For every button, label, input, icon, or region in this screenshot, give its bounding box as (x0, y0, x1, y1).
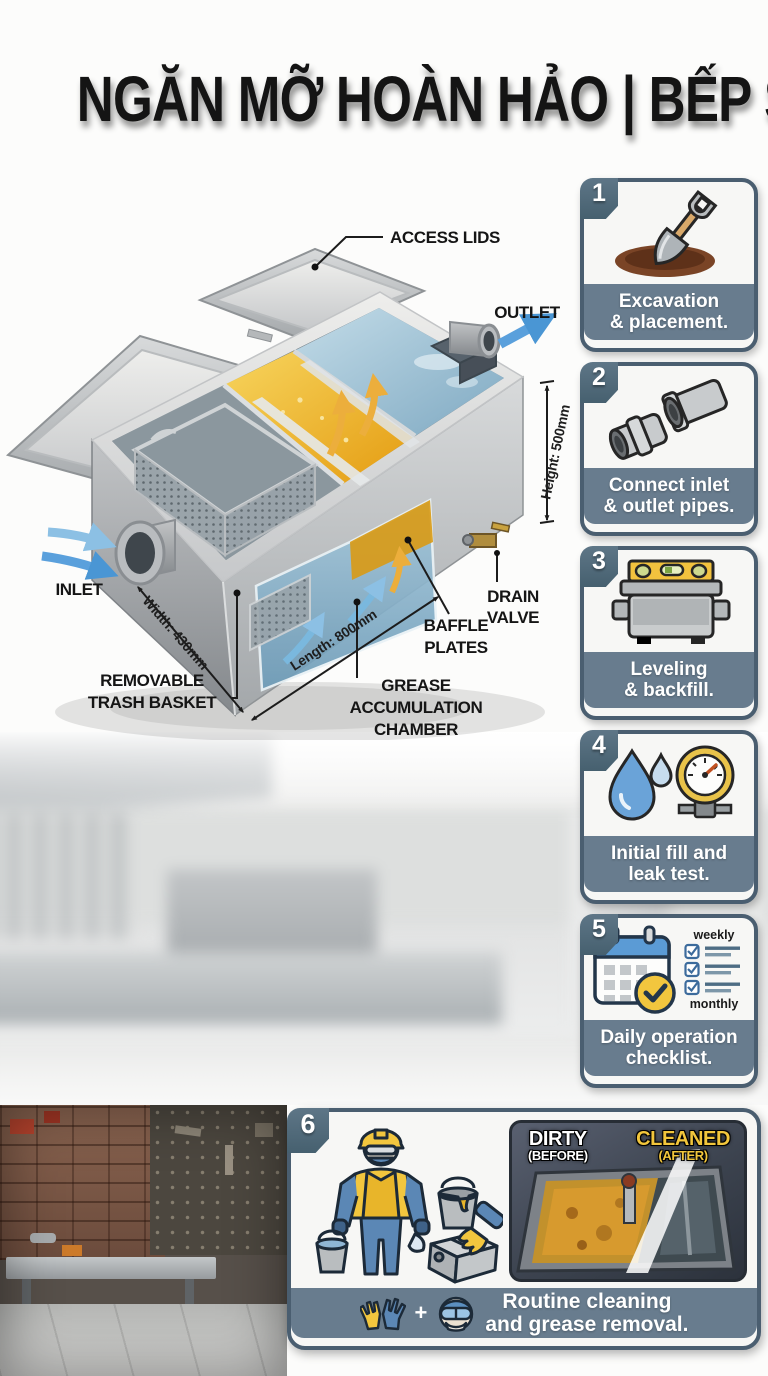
grease-trap-illustration: Height: 500mm Width: 430mm Length: 800mm… (0, 150, 580, 740)
step-card-1: 1 Excavation& placement. (580, 178, 758, 352)
step-6-caption: Routine cleaningand grease removal. (485, 1290, 688, 1336)
step-5-caption: Daily operationchecklist. (584, 1020, 754, 1076)
cleaned-after-label: CLEANED (AFTER) (636, 1129, 730, 1163)
trash-basket-label-1: REMOVABLE (100, 671, 204, 690)
page-title: NGĂN MỠ HOÀN HẢO | BẾP SẠCH NGAY (77, 62, 691, 136)
gloves-icon (360, 1293, 406, 1333)
grease-chamber-label-1: GREASE (381, 676, 450, 695)
step-1-caption: Excavation& placement. (584, 284, 754, 340)
workshop-background-photo (0, 1105, 287, 1376)
step-card-5: 5 weekly (580, 914, 758, 1088)
baffle-plates-label-2: PLATES (424, 638, 487, 657)
drain-valve-label-1: DRAIN (487, 587, 539, 606)
step-3-caption: Leveling& backfill. (584, 652, 754, 708)
grease-chamber-label-2: ACCUMULATION (350, 698, 483, 717)
access-lids-label: ACCESS LIDS (390, 228, 500, 247)
step-card-3: 3 Leveling& backfill. (580, 546, 758, 720)
trash-basket-label-2: TRASH BASKET (88, 693, 217, 712)
outlet-label: OUTLET (494, 303, 561, 322)
goggles-mask-icon (436, 1293, 476, 1333)
pipes-icon (604, 371, 734, 463)
step-card-2: 2 Connect inlet& outlet pipes. (580, 362, 758, 536)
drain-valve-label-2: VALVE (487, 608, 539, 627)
step-1-number: 1 (592, 179, 606, 208)
checklist-row-icon (684, 961, 744, 978)
step-2-caption: Connect inlet& outlet pipes. (584, 468, 754, 524)
step-5-number: 5 (592, 915, 606, 944)
height-dimension-label: Height: 500mm (537, 403, 573, 501)
shovel-excavation-icon (605, 185, 733, 281)
baffle-plates-label-1: BAFFLE (424, 616, 489, 635)
dirty-before-label: DIRTY (BEFORE) (528, 1129, 588, 1163)
step-2-number: 2 (592, 363, 606, 392)
checklist-monthly-label: monthly (690, 997, 739, 1011)
grease-chamber-label-3: CHAMBER (374, 720, 458, 739)
step-4-caption: Initial fill andleak test. (584, 836, 754, 892)
checklist-row-icon (684, 943, 744, 960)
step-3-number: 3 (592, 547, 606, 576)
water-drop-gauge-icon (599, 737, 739, 833)
dimension-height: Height: 500mm (537, 381, 573, 523)
step-6-caption-bar: + Routine cleaningand grease removal. (291, 1288, 757, 1338)
level-tank-icon (599, 553, 739, 649)
inlet-label: INLET (55, 580, 103, 599)
outlet-pipe (450, 322, 499, 357)
checklist-weekly-label: weekly (693, 928, 734, 942)
step-6-number: 6 (300, 1109, 315, 1140)
step-4-number: 4 (592, 731, 606, 760)
plus-sign: + (415, 1300, 428, 1326)
step-card-6: 6 (287, 1108, 761, 1350)
checklist-column: weekly monthly (681, 928, 747, 1011)
checklist-row-icon (684, 979, 744, 996)
grease-trap-diagram: Height: 500mm Width: 430mm Length: 800mm… (0, 150, 580, 740)
before-after-photo: DIRTY (BEFORE) CLEANED (AFTER) (509, 1120, 747, 1282)
worker-cleaning-icon (303, 1116, 503, 1284)
step-card-4: 4 Initial fill andleak test. (580, 730, 758, 904)
